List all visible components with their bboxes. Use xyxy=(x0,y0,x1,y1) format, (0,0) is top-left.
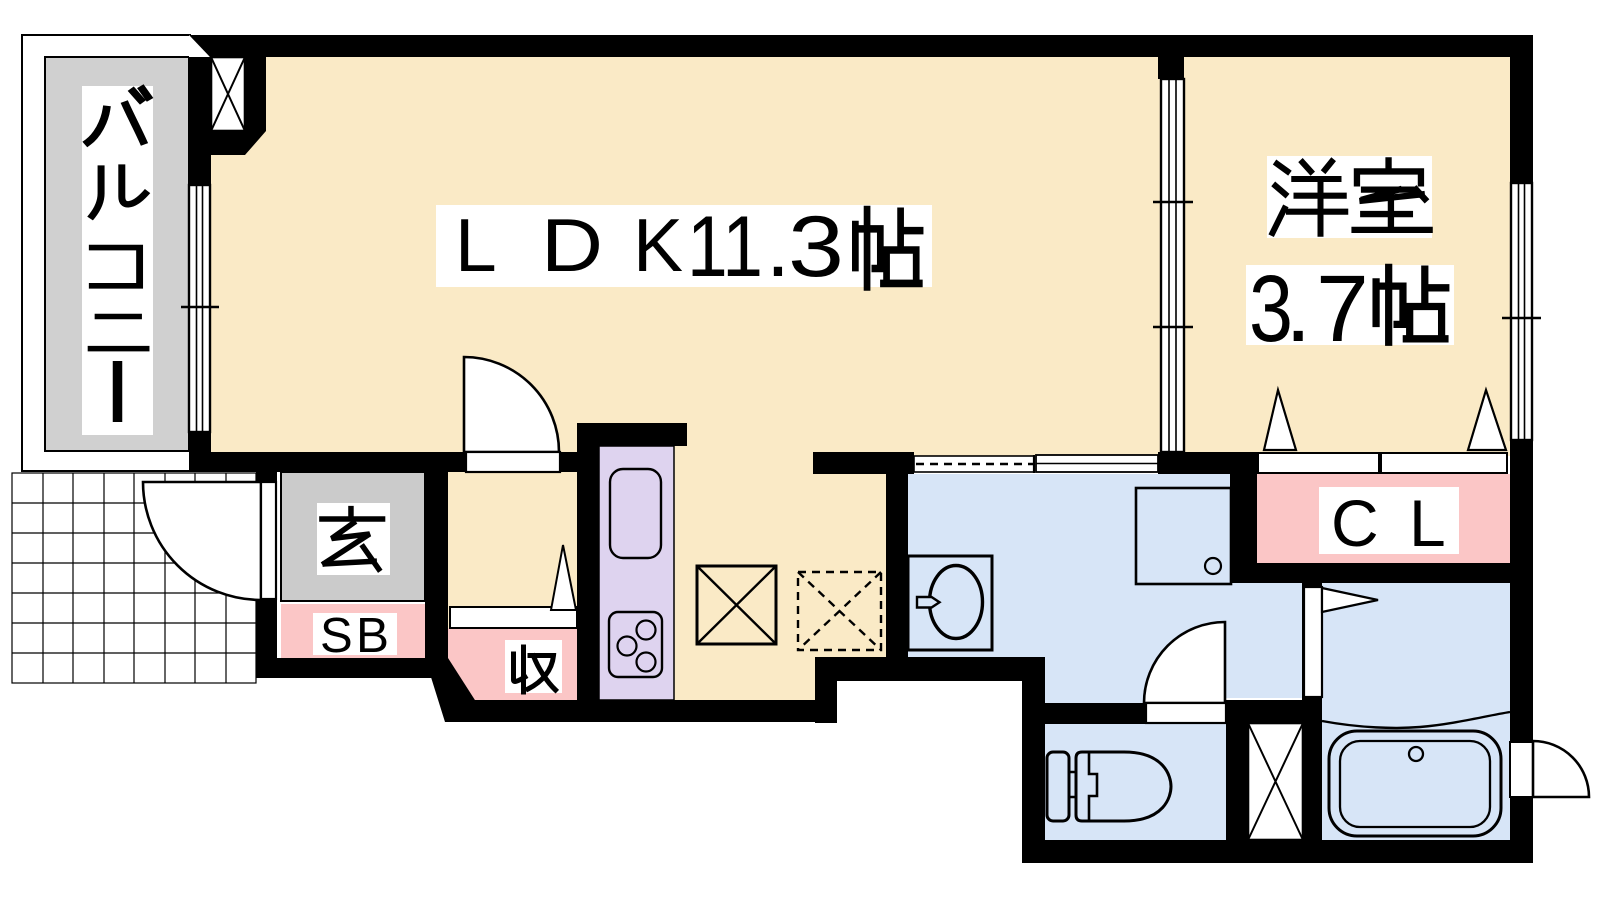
svg-text:K: K xyxy=(633,203,683,287)
svg-text:B: B xyxy=(356,609,389,663)
svg-text:3: 3 xyxy=(788,199,844,295)
svg-text:.: . xyxy=(1285,256,1311,362)
svg-text:L: L xyxy=(455,203,497,287)
svg-text:L: L xyxy=(1409,486,1446,560)
svg-text:D: D xyxy=(541,203,603,287)
svg-text:.: . xyxy=(766,199,790,295)
svg-text:7: 7 xyxy=(1316,256,1369,362)
svg-text:C: C xyxy=(1331,486,1379,560)
svg-text:S: S xyxy=(320,609,353,663)
svg-text:11: 11 xyxy=(687,199,763,295)
